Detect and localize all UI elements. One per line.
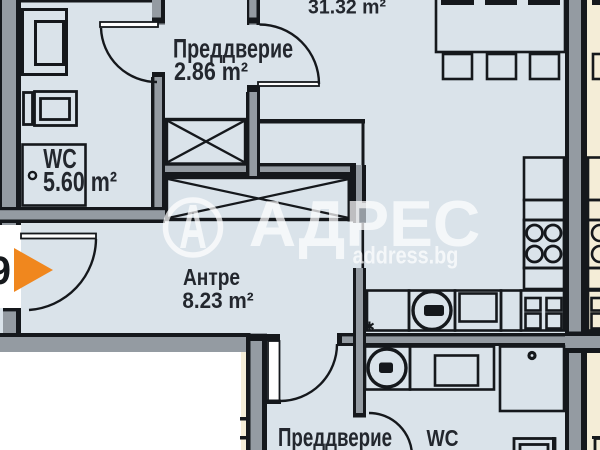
svg-text:9: 9 — [0, 249, 11, 293]
svg-text:А: А — [179, 192, 207, 262]
svg-text:2.86 m²: 2.86 m² — [174, 57, 248, 85]
svg-text:address.bg: address.bg — [353, 242, 459, 269]
svg-text:WC: WC — [426, 425, 458, 450]
svg-text:Преддверие: Преддверие — [278, 422, 392, 450]
svg-text:31.32 m²: 31.32 m² — [308, 0, 386, 19]
svg-text:Антре: Антре — [183, 264, 240, 290]
svg-text:8.23 m²: 8.23 m² — [182, 288, 253, 313]
svg-text:5.60 m²: 5.60 m² — [43, 168, 117, 198]
